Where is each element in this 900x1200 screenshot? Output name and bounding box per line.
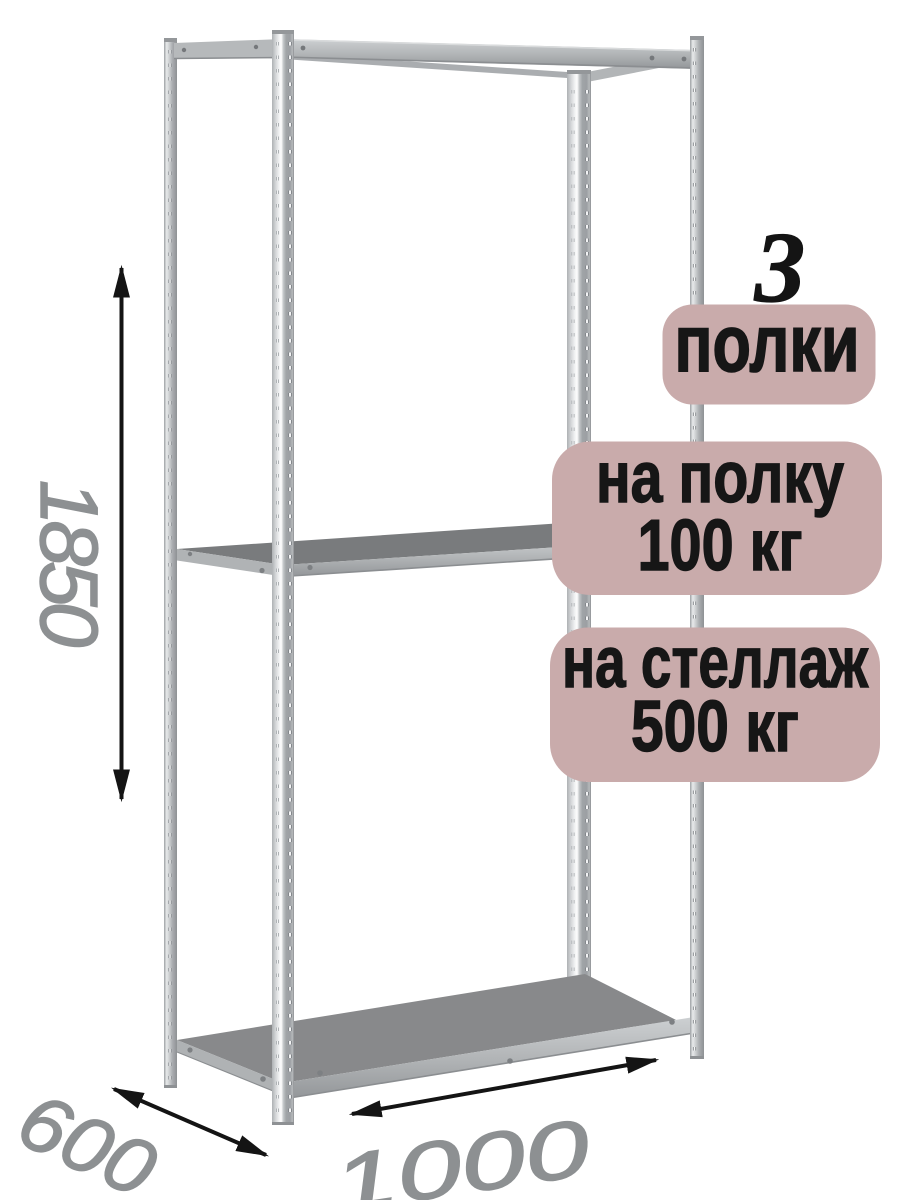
svg-text:500 кг: 500 кг: [631, 687, 799, 767]
svg-text:100 кг: 100 кг: [638, 506, 803, 586]
svg-text:1000: 1000: [327, 1103, 595, 1200]
svg-text:полки: полки: [675, 299, 860, 389]
svg-text:1850: 1850: [23, 480, 114, 647]
svg-text:600: 600: [5, 1076, 169, 1200]
